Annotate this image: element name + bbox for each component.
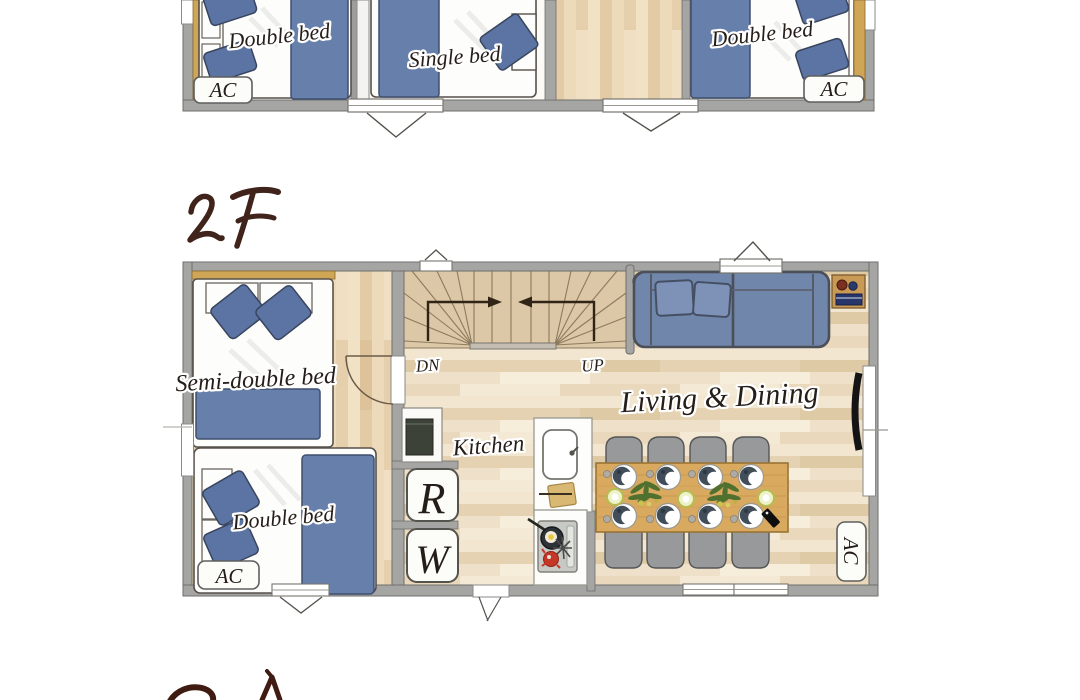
svg-text:R: R — [418, 474, 446, 523]
svg-text:W: W — [415, 537, 452, 582]
svg-text:AC: AC — [208, 78, 238, 102]
svg-text:AC: AC — [214, 564, 244, 588]
svg-text:DN: DN — [414, 355, 442, 376]
svg-text:AC: AC — [819, 77, 849, 101]
svg-text:UP: UP — [581, 355, 605, 376]
svg-text:AC: AC — [839, 536, 863, 566]
svg-text:Kitchen: Kitchen — [451, 431, 525, 461]
